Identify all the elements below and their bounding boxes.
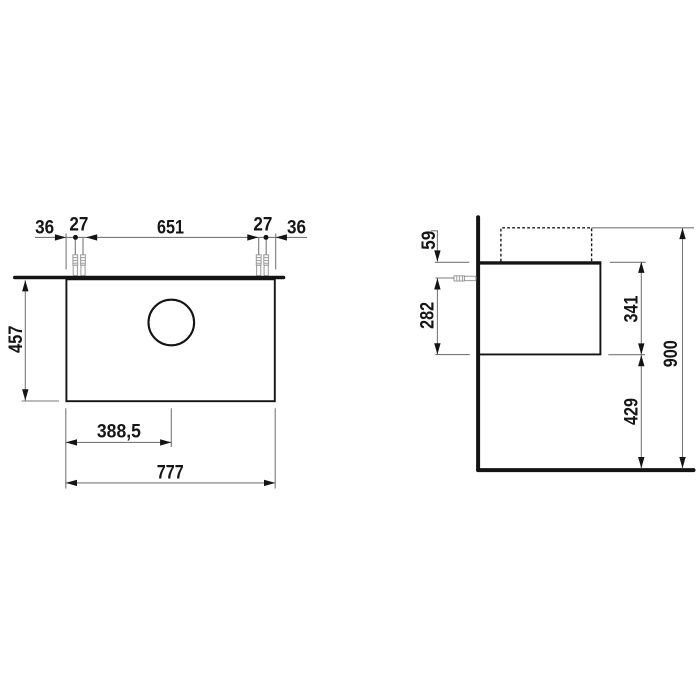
svg-text:457: 457 [6, 326, 27, 354]
svg-text:27: 27 [253, 214, 272, 235]
svg-text:341: 341 [622, 295, 643, 322]
svg-text:59: 59 [419, 231, 440, 250]
svg-text:388,5: 388,5 [97, 422, 141, 443]
svg-text:429: 429 [622, 398, 643, 425]
svg-text:36: 36 [35, 218, 54, 239]
svg-text:651: 651 [157, 218, 184, 239]
svg-text:282: 282 [418, 302, 439, 329]
svg-text:36: 36 [287, 218, 306, 239]
svg-text:900: 900 [661, 340, 682, 367]
svg-text:777: 777 [157, 463, 184, 484]
svg-text:27: 27 [69, 214, 88, 235]
